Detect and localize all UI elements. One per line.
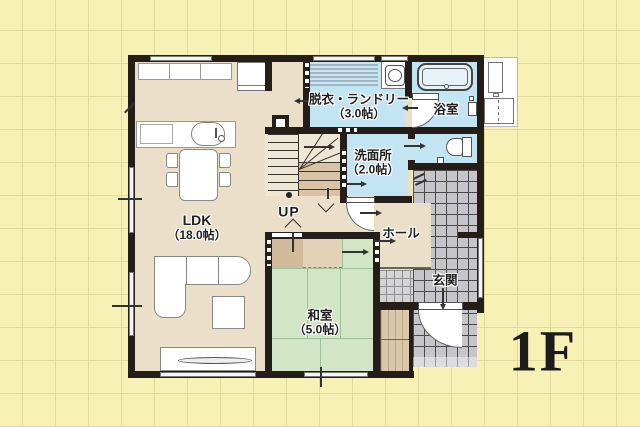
sliding-door-washitsu-hall xyxy=(375,242,379,264)
laundry-counter xyxy=(309,62,378,86)
shoe-cabinet xyxy=(380,303,411,373)
heat-pump-line xyxy=(498,100,499,122)
pipe-space-column xyxy=(272,115,289,131)
sliding-door-laundry-washroom xyxy=(338,128,357,132)
room-size: （5.0帖） xyxy=(294,323,347,337)
washroom-door-leaf xyxy=(346,197,375,203)
stair-treads-left xyxy=(268,134,298,196)
window-top-ldk xyxy=(150,56,212,61)
stair-newel-dot xyxy=(286,192,292,198)
window-tick xyxy=(320,367,322,387)
room-name: 玄関 xyxy=(432,274,457,288)
room-label-bathroom: 浴室 xyxy=(433,103,458,117)
floor-number-label: 1F xyxy=(509,318,577,385)
bathroom-door-leaf xyxy=(412,93,439,100)
arrow-head xyxy=(420,143,426,149)
entrance-lower-tile xyxy=(378,270,413,302)
arrow-head xyxy=(294,98,300,104)
wall-bath-bottom xyxy=(405,127,484,134)
wall-porch-left xyxy=(409,302,413,372)
arrow-toilet-entry xyxy=(404,145,421,147)
room-size: （18.0帖） xyxy=(167,228,226,243)
shower-valve xyxy=(469,96,474,101)
window-right-entrance xyxy=(478,238,483,298)
refrigerator xyxy=(237,62,266,91)
cabinet-divider xyxy=(200,63,201,80)
hall-step-edge xyxy=(378,267,431,269)
window-tick xyxy=(118,198,142,200)
heat-pump-unit xyxy=(484,98,514,124)
kitchen-faucet xyxy=(218,135,225,142)
kitchen-faucet-stem xyxy=(215,128,217,138)
arrow-washroom xyxy=(346,183,362,185)
washitsu-closet-upper xyxy=(303,236,342,268)
room-name: ホール xyxy=(382,227,420,241)
tatami-line xyxy=(272,268,373,269)
room-name: 脱衣・ランドリー xyxy=(309,94,409,108)
cabinet-divider xyxy=(169,63,170,80)
refrigerator-door-line xyxy=(238,85,265,86)
water-heater-stub xyxy=(493,93,499,97)
dining-chair xyxy=(219,153,231,168)
kitchen-sink xyxy=(191,122,225,146)
window-top-laundry xyxy=(313,56,375,61)
wall-toilet-bottom xyxy=(408,163,484,170)
sofa-cushion-line xyxy=(186,257,187,284)
porch-step xyxy=(413,357,477,367)
television xyxy=(178,357,252,364)
stair-direction-arrow xyxy=(304,146,330,148)
sofa-cushion-line xyxy=(218,257,219,284)
room-label-laundry: 脱衣・ランドリー （3.0帖） xyxy=(309,94,409,121)
floor-plan-canvas: LDK （18.0帖） 和室 （5.0帖） 脱衣・ランドリー （3.0帖） 洗面… xyxy=(0,0,640,427)
room-name: 洗面所 xyxy=(347,150,400,164)
washitsu-closet xyxy=(272,236,303,268)
arrow-head xyxy=(376,210,382,216)
sliding-door-ldk-washitsu xyxy=(267,240,271,266)
wall-kitchen-nook xyxy=(265,55,272,91)
toilet-tank xyxy=(462,137,472,157)
stairs-up-label: UP xyxy=(278,205,299,219)
arrow-washitsu-entry xyxy=(342,251,364,253)
arrow-hall-upper xyxy=(360,212,377,214)
room-label-ldk: LDK （18.0帖） xyxy=(167,213,226,243)
shoe-cabinet-shelf xyxy=(380,339,409,340)
room-label-washitsu: 和室 （5.0帖） xyxy=(294,310,347,337)
window-bottom-ldk xyxy=(160,372,256,377)
dining-chair xyxy=(219,172,231,187)
kitchen-wall-cabinet xyxy=(138,63,232,80)
chevron-tail xyxy=(327,188,329,199)
window-left-upper xyxy=(129,167,134,233)
dining-chair xyxy=(166,153,178,168)
room-name: LDK xyxy=(167,213,226,228)
stair-arrow-head xyxy=(329,144,335,150)
kitchen-cooktop xyxy=(140,124,173,144)
arrow-head xyxy=(440,304,446,310)
room-label-hall: ホール xyxy=(382,227,420,241)
window-top-washer xyxy=(381,56,408,61)
washing-machine-drum xyxy=(388,69,402,82)
chevron-tail xyxy=(292,232,294,252)
window-bottom-washitsu xyxy=(304,372,368,377)
tatami-line xyxy=(265,338,373,339)
arrow-head xyxy=(361,181,367,187)
closet-door-track xyxy=(272,233,302,237)
window-left-lower xyxy=(129,272,134,336)
dining-table xyxy=(179,149,218,201)
dining-chair xyxy=(166,172,178,187)
room-name: 浴室 xyxy=(433,103,458,117)
room-size: （3.0帖） xyxy=(309,107,409,121)
window-tick xyxy=(112,305,142,307)
room-name: 和室 xyxy=(294,310,347,324)
arrow-entrance xyxy=(442,288,444,305)
wall-entrance-stub xyxy=(458,232,477,238)
bathtub-drain xyxy=(444,84,449,89)
water-heater-tank xyxy=(488,62,503,93)
sliding-door-laundry xyxy=(305,63,309,88)
room-size: （2.0帖） xyxy=(347,163,400,177)
sofa-seam-cover xyxy=(155,282,185,286)
room-label-entrance: 玄関 xyxy=(432,274,457,288)
sofa-chaise xyxy=(154,284,186,318)
toilet-door-opening xyxy=(408,139,415,160)
toilet-bowl xyxy=(446,138,463,156)
room-label-washroom: 洗面所 （2.0帖） xyxy=(347,150,400,177)
shower-mixer xyxy=(468,102,477,116)
coffee-table xyxy=(212,296,245,329)
stair-divider xyxy=(298,134,299,196)
sofa xyxy=(154,256,251,285)
wall-entrance-right xyxy=(462,302,484,310)
arrow-head xyxy=(363,249,369,255)
wall-entrance-left xyxy=(378,302,418,310)
